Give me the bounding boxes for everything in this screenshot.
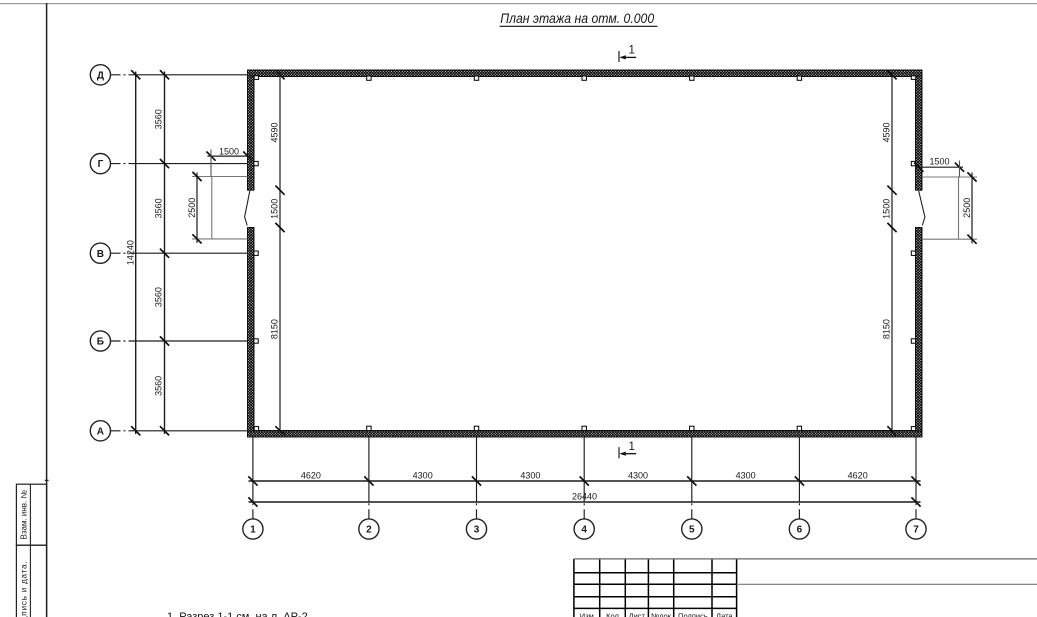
svg-text:3560: 3560 [153,376,163,396]
svg-text:6: 6 [797,525,803,536]
svg-text:7: 7 [913,525,919,536]
svg-text:№док: №док [651,612,672,617]
svg-text:5: 5 [689,525,695,536]
svg-text:Кол: Кол [606,612,619,617]
svg-text:1: 1 [628,45,634,57]
svg-text:3: 3 [474,525,480,536]
svg-text:26440: 26440 [572,491,597,501]
svg-text:Г: Г [98,159,104,170]
svg-text:А: А [97,426,104,437]
svg-text:1500: 1500 [269,199,279,219]
svg-text:Изм: Изм [580,612,594,617]
svg-text:8150: 8150 [269,319,279,339]
svg-text:4300: 4300 [736,470,756,480]
svg-text:3560: 3560 [153,109,163,129]
svg-text:Дата: Дата [716,612,733,617]
svg-text:4300: 4300 [520,470,540,480]
svg-text:1500: 1500 [219,147,239,157]
svg-text:4620: 4620 [848,470,868,480]
svg-text:4590: 4590 [882,122,892,142]
svg-text:Подпись: Подпись [678,612,708,617]
svg-text:4300: 4300 [628,470,648,480]
svg-text:Подпись и дата.: Подпись и дата. [18,561,28,617]
svg-text:Лист: Лист [629,612,646,617]
svg-text:3560: 3560 [153,198,163,218]
svg-text:4590: 4590 [269,122,279,142]
svg-text:Б: Б [97,337,104,348]
svg-text:3560: 3560 [153,287,163,307]
svg-text:1: 1 [628,441,634,453]
svg-text:1: 1 [250,525,256,536]
svg-text:8150: 8150 [882,319,892,339]
svg-text:4620: 4620 [301,470,321,480]
svg-text:2: 2 [366,525,372,536]
svg-text:1. Разрез 1-1 см. на л. АР-2: 1. Разрез 1-1 см. на л. АР-2 [167,611,308,617]
svg-text:2500: 2500 [187,198,197,218]
svg-text:В: В [97,249,104,260]
svg-text:2500: 2500 [962,198,972,218]
svg-text:14240: 14240 [125,240,135,265]
svg-text:4300: 4300 [413,470,433,480]
svg-text:1500: 1500 [882,199,892,219]
svg-text:Взам. инв. №: Взам. инв. № [19,490,28,540]
svg-text:4: 4 [581,525,587,536]
svg-text:1500: 1500 [929,156,949,166]
svg-text:Д: Д [97,70,104,81]
svg-text:План этажа на отм. 0.000: План этажа на отм. 0.000 [500,11,654,26]
